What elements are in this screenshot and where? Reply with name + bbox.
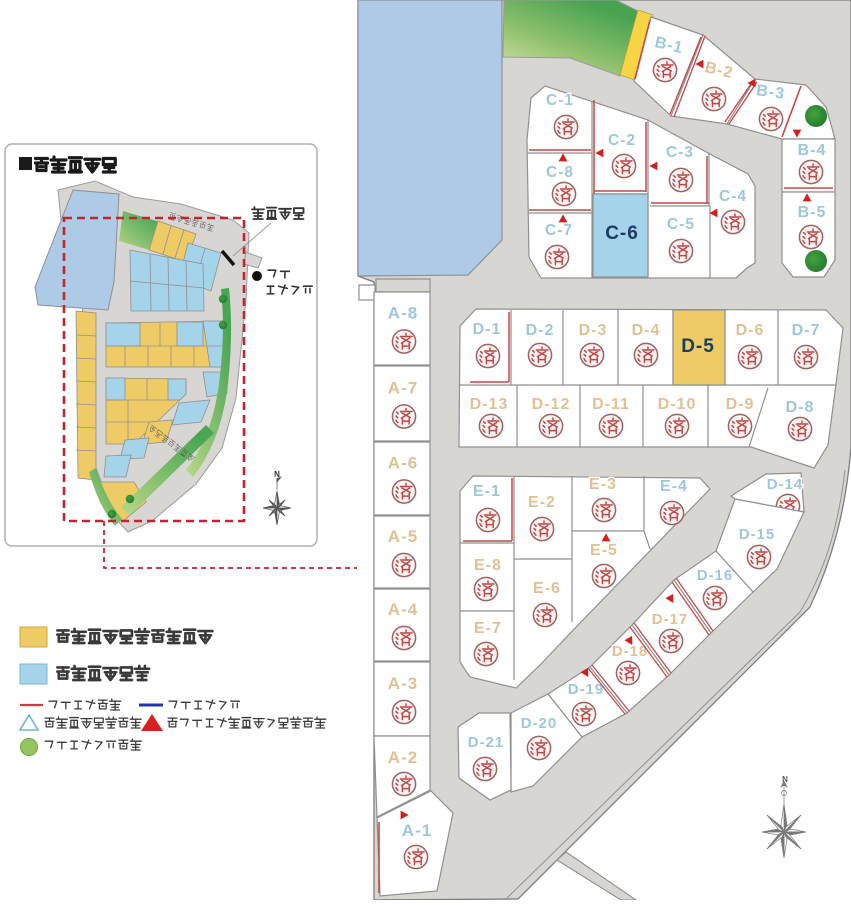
- svg-text:A-3: A-3: [388, 674, 418, 693]
- svg-text:D-18: D-18: [612, 643, 649, 660]
- svg-text:E-5: E-5: [590, 542, 618, 559]
- svg-text:A-8: A-8: [388, 304, 418, 323]
- svg-text:D-9: D-9: [726, 396, 755, 413]
- svg-text:C-1: C-1: [546, 92, 574, 109]
- svg-text:N: N: [782, 775, 788, 784]
- svg-text:D-10: D-10: [658, 396, 697, 413]
- svg-text:A-4: A-4: [388, 600, 418, 619]
- svg-text:D-14: D-14: [767, 476, 804, 493]
- svg-text:C-6: C-6: [605, 223, 639, 244]
- svg-text:C-8: C-8: [546, 164, 574, 181]
- svg-text:E-4: E-4: [660, 478, 688, 495]
- svg-text:D-13: D-13: [470, 396, 509, 413]
- svg-text:E-6: E-6: [533, 580, 561, 597]
- svg-text:D-16: D-16: [697, 567, 734, 584]
- svg-text:D-6: D-6: [736, 322, 765, 339]
- svg-text:B-4: B-4: [798, 142, 827, 159]
- svg-text:D-11: D-11: [592, 396, 630, 413]
- svg-text:D-20: D-20: [521, 715, 558, 732]
- svg-text:E-8: E-8: [474, 557, 502, 574]
- svg-text:A-2: A-2: [388, 748, 418, 767]
- svg-text:C-7: C-7: [545, 222, 573, 239]
- svg-text:A-6: A-6: [388, 454, 418, 473]
- svg-text:D-3: D-3: [579, 322, 608, 339]
- svg-text:C-3: C-3: [666, 144, 694, 161]
- svg-text:D-5: D-5: [681, 336, 715, 357]
- svg-text:A-1: A-1: [402, 821, 432, 840]
- svg-text:D-15: D-15: [739, 526, 776, 543]
- svg-text:E-3: E-3: [589, 476, 617, 493]
- svg-text:E-1: E-1: [473, 483, 501, 500]
- svg-text:D-21: D-21: [468, 734, 505, 751]
- svg-text:C-4: C-4: [719, 188, 747, 205]
- svg-text:E-7: E-7: [474, 620, 502, 637]
- svg-text:A-7: A-7: [388, 379, 418, 398]
- svg-text:E-2: E-2: [528, 494, 556, 511]
- svg-text:C-5: C-5: [667, 216, 695, 233]
- svg-text:D-12: D-12: [532, 396, 571, 413]
- svg-text:D-8: D-8: [786, 399, 815, 416]
- svg-text:D-4: D-4: [632, 322, 661, 339]
- svg-text:C-2: C-2: [608, 132, 636, 149]
- svg-text:D-17: D-17: [652, 611, 689, 628]
- svg-text:D-2: D-2: [526, 322, 555, 339]
- svg-text:D-1: D-1: [473, 321, 502, 338]
- svg-text:D-7: D-7: [792, 322, 821, 339]
- svg-text:A-5: A-5: [388, 527, 418, 546]
- svg-text:D-19: D-19: [568, 681, 605, 698]
- svg-text:N: N: [274, 470, 280, 479]
- svg-text:B-5: B-5: [798, 204, 827, 221]
